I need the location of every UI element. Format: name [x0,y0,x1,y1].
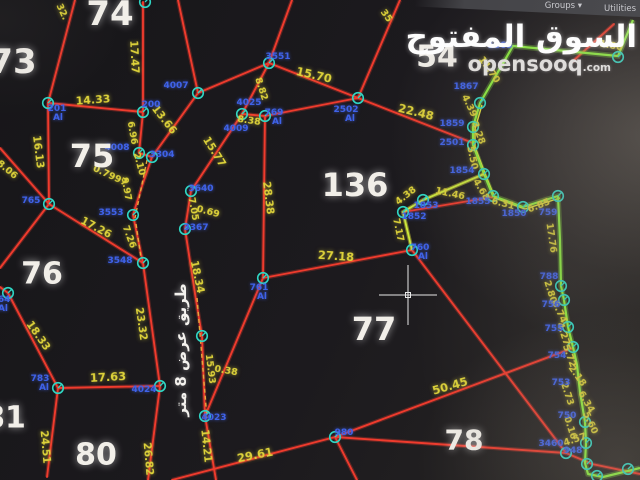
distance-label: 17.26 [79,215,114,241]
point-id-label: 788 [540,272,559,282]
point-id-label: 980 [335,428,354,438]
point-id-label: 755 [545,324,564,334]
parcel-number: 54 [416,40,458,75]
point-id-label: 3460 [538,439,563,449]
parcel-number: 74 [86,0,133,34]
distance-label: 1.80 [598,39,623,54]
distance-label: 26.82 [141,442,156,476]
parcel-number: 77 [352,310,397,348]
screen-photo: 32.17.4714.3316.138.066.962.100.79979.97… [0,0,640,480]
distance-label: 14.21 [198,429,213,463]
point-id-label: 1863 [487,41,512,51]
distance-label: 17.63 [89,369,126,385]
parcel-number: 73 [0,42,37,82]
point-id-label: 765 [22,196,41,206]
point-id-label: 753 [552,378,571,388]
point-id-label: 4009 [223,124,248,134]
point-id-label: 3553 [98,208,123,218]
point-id-label: 759 [539,208,558,218]
parcel-number: 80 [75,438,117,473]
point-id-label: 1867 [453,82,478,92]
point-id-label: 1852 [401,212,426,222]
parcel-number: 75 [70,137,115,175]
point-id-label: 754 [548,351,567,361]
parcel-boundary-line [335,437,357,480]
point-id-label: 3548 [107,256,132,266]
distance-label: 24.51 [38,430,53,464]
point-id-label: 756 [542,300,561,310]
point-id-label: 200 [142,100,161,110]
point-id-label: Al [257,292,267,302]
point-id-label: 2501 [439,138,464,148]
point-id-label: 750 [558,411,577,421]
point-id-label: Al [0,304,8,314]
point-id-label: 4023 [201,413,226,423]
point-id-label: 4007 [163,81,188,91]
point-id-label: 3367 [183,223,208,233]
point-id-label: 948 [564,446,583,456]
parcel-number: 76 [21,257,63,292]
road-name-label: طريق عرض 8 متر [172,283,190,417]
point-id-label: 1850 [501,209,526,219]
cadastral-map-canvas[interactable]: 32.17.4714.3316.138.066.962.100.79979.97… [0,0,640,480]
distance-label: 29.61 [236,445,274,466]
toolbar-utilities-menu[interactable]: Utilities [604,4,636,14]
distance-label: 17.76 [543,222,558,254]
toolbar-groups-menu[interactable]: Groups ▾ [545,1,582,11]
parcel-number: 81 [0,401,26,436]
parcel-boundary-line [205,278,263,416]
distance-label: 9.97 [119,176,134,201]
point-id-label: 3551 [265,52,290,62]
parcel-number: 136 [322,166,389,204]
point-id-label: 4025 [236,98,261,108]
point-id-label: Al [39,383,49,393]
parcel-boundary-line [48,103,49,204]
distance-label: 27.18 [317,248,354,265]
point-id-label: Al [345,114,355,124]
point-id-label: Al [53,113,63,123]
point-id-label: Al [418,252,428,262]
point-id-label: 4024 [131,385,156,395]
point-id-label: 1853 [413,201,438,211]
distance-label: 17.47 [127,40,141,74]
point-id-label: 3304 [149,150,174,160]
survey-point-tick [145,0,148,2]
point-id-label: 1859 [439,119,464,129]
parcel-boundary-line [178,0,198,93]
distance-label: 23.32 [133,307,150,342]
point-id-label: 3640 [188,184,213,194]
distance-label: 11.46 [434,185,466,202]
distance-label: 16.13 [30,135,46,169]
point-id-label: 1854 [449,166,474,176]
distance-label: 4.39 [459,93,479,119]
parcel-number: 78 [445,424,484,457]
point-id-label: 1855 [465,197,490,207]
point-id-label: Al [272,117,282,127]
distance-label: 14.33 [75,92,111,107]
